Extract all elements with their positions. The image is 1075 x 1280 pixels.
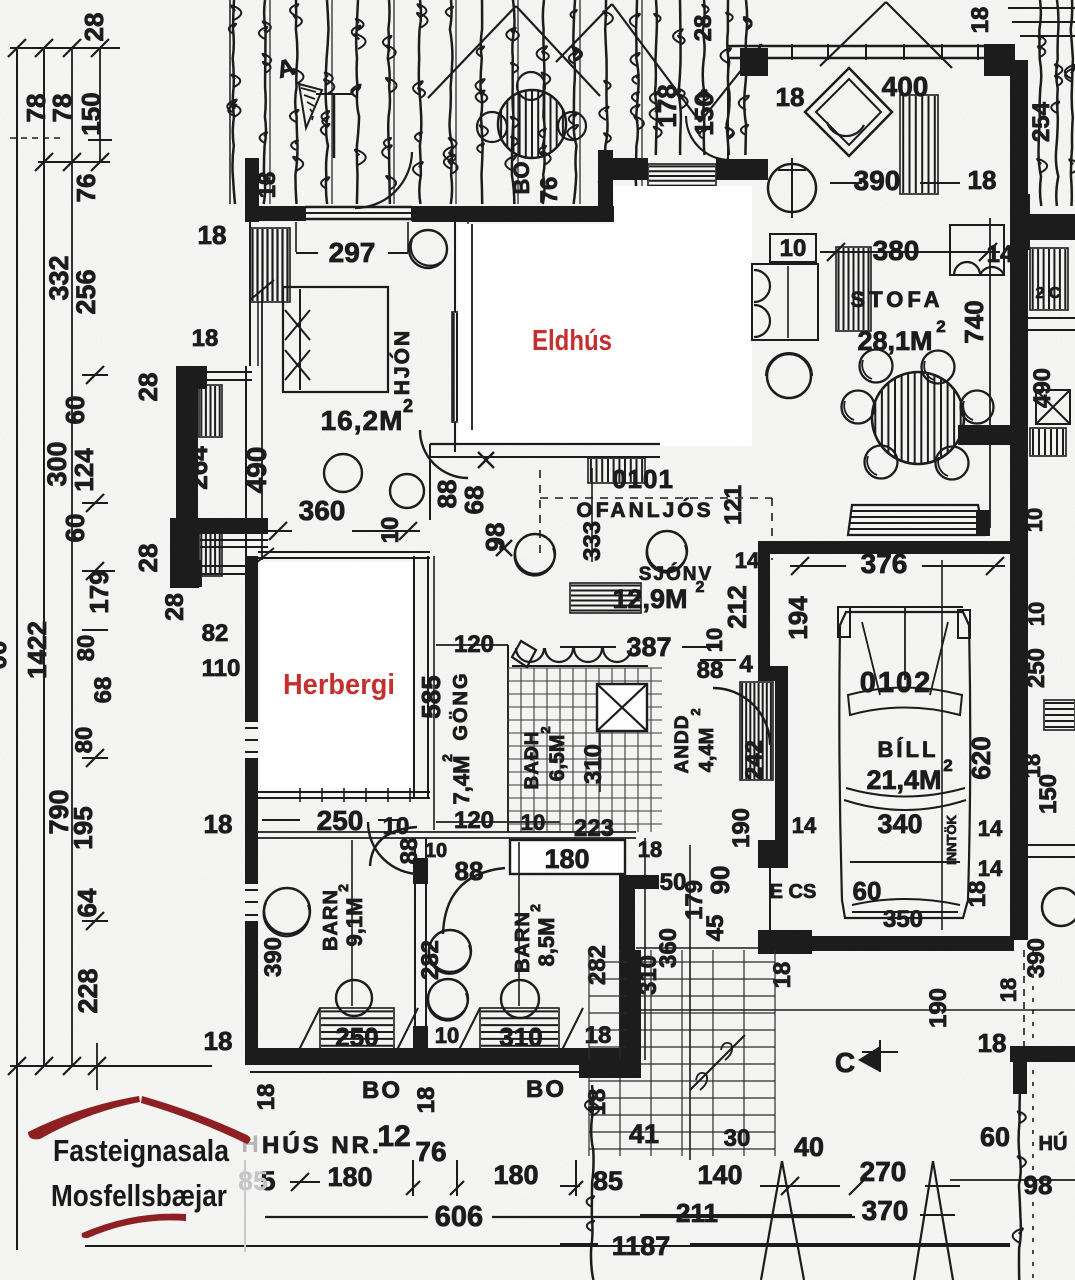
svg-text:85: 85: [238, 1166, 268, 1196]
svg-text:18: 18: [192, 325, 219, 352]
svg-text:28: 28: [161, 593, 189, 621]
svg-text:82: 82: [202, 620, 229, 647]
svg-text:30: 30: [724, 1125, 751, 1152]
svg-text:BO: BO: [509, 162, 534, 195]
svg-text:490: 490: [1029, 368, 1056, 408]
svg-text:41: 41: [629, 1119, 659, 1149]
svg-text:64: 64: [72, 888, 102, 917]
svg-text:190: 190: [728, 808, 755, 848]
svg-text:332: 332: [44, 255, 74, 300]
svg-text:10: 10: [377, 517, 404, 544]
svg-text:2: 2: [696, 579, 705, 596]
svg-text:60: 60: [60, 514, 90, 543]
svg-text:BO: BO: [526, 1076, 566, 1103]
svg-text:740: 740: [959, 300, 989, 343]
svg-text:2: 2: [943, 756, 952, 775]
svg-text:18: 18: [769, 962, 796, 989]
svg-text:BO: BO: [362, 1077, 402, 1104]
svg-text:Fasteignasala: Fasteignasala: [53, 1133, 230, 1168]
svg-text:490: 490: [241, 447, 272, 494]
svg-text:2: 2: [403, 396, 413, 416]
svg-text:2: 2: [527, 904, 543, 912]
svg-text:80: 80: [73, 635, 100, 662]
svg-text:8,5M: 8,5M: [534, 918, 559, 967]
svg-text:212: 212: [722, 585, 752, 628]
svg-text:18: 18: [968, 165, 997, 195]
svg-text:10: 10: [702, 628, 727, 652]
svg-text:380: 380: [873, 235, 920, 266]
svg-text:21,4M: 21,4M: [866, 765, 941, 795]
svg-text:150: 150: [689, 92, 719, 135]
svg-text:C: C: [835, 1047, 855, 1078]
svg-text:28: 28: [133, 544, 163, 573]
svg-text:INNTÖK: INNTÖK: [944, 814, 959, 864]
svg-text:211: 211: [676, 1198, 718, 1228]
svg-text:18: 18: [254, 172, 281, 199]
svg-text:OFANLJÓS: OFANLJÓS: [576, 498, 713, 522]
svg-text:Herbergi: Herbergi: [283, 669, 395, 701]
svg-text:76: 76: [415, 1136, 446, 1167]
svg-text:90: 90: [705, 866, 735, 895]
svg-text:98: 98: [1024, 1170, 1053, 1200]
svg-text:18: 18: [996, 978, 1021, 1002]
svg-text:0101: 0101: [612, 464, 674, 494]
svg-text:180: 180: [493, 1160, 538, 1190]
svg-text:12,9M: 12,9M: [612, 584, 687, 614]
svg-text:28: 28: [133, 373, 163, 402]
svg-text:2: 2: [439, 754, 455, 762]
svg-text:Eldhús: Eldhús: [532, 325, 612, 357]
svg-text:179: 179: [84, 570, 114, 613]
svg-text:14: 14: [792, 813, 817, 838]
svg-text:370: 370: [862, 1195, 909, 1226]
svg-text:140: 140: [697, 1160, 742, 1190]
svg-text:190: 190: [925, 988, 952, 1028]
svg-text:10: 10: [425, 840, 447, 862]
svg-text:150: 150: [76, 92, 106, 135]
svg-text:14: 14: [735, 548, 760, 573]
svg-text:228: 228: [73, 968, 103, 1013]
svg-text:2: 2: [688, 708, 703, 715]
svg-text:150: 150: [1035, 774, 1062, 814]
svg-text:390: 390: [260, 937, 287, 977]
svg-text:300: 300: [42, 441, 72, 486]
svg-text:18: 18: [776, 82, 805, 112]
svg-text:18: 18: [978, 1028, 1007, 1058]
svg-text:1187: 1187: [612, 1231, 671, 1261]
svg-text:10: 10: [435, 1023, 459, 1048]
svg-text:Mosfellsbæjar: Mosfellsbæjar: [51, 1178, 227, 1213]
svg-text:0102: 0102: [860, 667, 933, 699]
svg-text:18: 18: [413, 1087, 440, 1114]
svg-text:2 C: 2 C: [1036, 285, 1061, 302]
svg-text:STOFA: STOFA: [851, 287, 944, 312]
svg-text:ANDD: ANDD: [672, 715, 693, 774]
svg-text:76: 76: [71, 174, 101, 203]
svg-text:12: 12: [377, 1120, 410, 1153]
svg-text:195: 195: [68, 806, 98, 849]
svg-text:282: 282: [417, 940, 444, 980]
svg-text:178: 178: [652, 84, 682, 127]
svg-text:18: 18: [204, 1026, 233, 1056]
svg-text:4: 4: [739, 651, 753, 678]
svg-text:1422: 1422: [22, 621, 52, 679]
svg-text:88: 88: [455, 856, 484, 886]
svg-text:270: 270: [860, 1156, 907, 1187]
svg-text:16,2M: 16,2M: [321, 405, 404, 436]
svg-text:18: 18: [253, 1084, 280, 1111]
svg-text:250: 250: [335, 1022, 378, 1052]
svg-text:180: 180: [327, 1162, 372, 1192]
svg-text:606: 606: [435, 1201, 483, 1233]
svg-text:4,4M: 4,4M: [696, 728, 718, 772]
svg-text:60: 60: [980, 1122, 1010, 1152]
svg-text:HÚS NR.: HÚS NR.: [262, 1131, 382, 1159]
svg-text:10: 10: [780, 235, 807, 262]
svg-text:310: 310: [499, 1022, 542, 1052]
svg-text:68: 68: [459, 486, 489, 515]
svg-text:400: 400: [882, 71, 929, 102]
svg-text:387: 387: [626, 632, 671, 662]
svg-text:28: 28: [690, 15, 717, 42]
svg-text:10: 10: [1022, 508, 1047, 532]
svg-text:BÍLL: BÍLL: [878, 737, 939, 762]
svg-text:10: 10: [1024, 602, 1049, 626]
svg-text:242: 242: [741, 740, 768, 780]
svg-text:256: 256: [71, 269, 101, 314]
svg-text:80: 80: [71, 727, 98, 754]
svg-text:390: 390: [1023, 938, 1050, 978]
svg-text:120: 120: [454, 807, 494, 834]
svg-text:E CS: E CS: [770, 881, 817, 903]
svg-text:264: 264: [183, 446, 213, 490]
svg-text:2: 2: [936, 317, 945, 336]
svg-text:620: 620: [966, 736, 996, 779]
svg-text:00: 00: [0, 641, 12, 670]
svg-text:18: 18: [204, 809, 233, 839]
svg-text:180: 180: [544, 844, 589, 874]
svg-text:88: 88: [697, 657, 724, 684]
svg-text:6,5M: 6,5M: [546, 735, 569, 782]
svg-text:110: 110: [202, 655, 241, 682]
svg-text:310: 310: [580, 744, 607, 784]
svg-text:68: 68: [90, 677, 117, 704]
svg-text:28: 28: [79, 13, 109, 42]
svg-text:297: 297: [329, 237, 376, 268]
svg-text:HÚ: HÚ: [1039, 1131, 1068, 1155]
svg-text:10: 10: [521, 810, 545, 835]
svg-text:78: 78: [47, 94, 77, 123]
svg-text:350: 350: [883, 906, 923, 933]
svg-text:2: 2: [538, 726, 553, 733]
svg-text:360: 360: [299, 495, 346, 526]
svg-text:340: 340: [877, 809, 922, 839]
svg-text:85: 85: [593, 1166, 623, 1196]
svg-text:179: 179: [681, 880, 708, 920]
svg-text:390: 390: [854, 165, 901, 196]
svg-text:HJÓN: HJÓN: [390, 329, 414, 395]
svg-text:121: 121: [720, 485, 747, 525]
svg-text:124: 124: [69, 448, 99, 492]
svg-text:254: 254: [1028, 101, 1055, 142]
svg-text:60: 60: [60, 396, 90, 425]
svg-text:585: 585: [416, 675, 446, 718]
svg-text:18: 18: [967, 7, 994, 34]
svg-text:14: 14: [978, 856, 1003, 881]
svg-text:9,1M: 9,1M: [342, 898, 367, 947]
svg-text:376: 376: [861, 548, 908, 579]
svg-text:88: 88: [432, 480, 462, 509]
svg-text:BAÐH: BAÐH: [522, 731, 543, 790]
svg-text:BARN: BARN: [512, 911, 534, 973]
svg-text:76: 76: [536, 177, 563, 204]
svg-text:GÖNG: GÖNG: [449, 671, 472, 740]
svg-text:40: 40: [794, 1132, 824, 1162]
svg-text:18: 18: [964, 881, 991, 908]
svg-text:2: 2: [335, 884, 351, 892]
svg-text:14: 14: [978, 816, 1003, 841]
svg-text:18: 18: [198, 220, 227, 250]
svg-text:BARN: BARN: [320, 889, 342, 951]
svg-text:18: 18: [638, 837, 662, 862]
svg-text:194: 194: [783, 596, 813, 640]
svg-text:250: 250: [1023, 648, 1050, 688]
